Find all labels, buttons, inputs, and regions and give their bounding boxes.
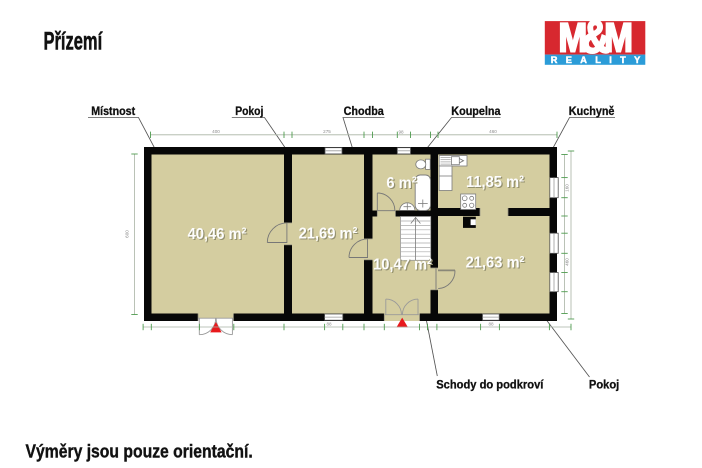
svg-text:REALITY: REALITY [551,55,649,65]
svg-text:600: 600 [125,230,130,238]
svg-text:Schody do podkroví: Schody do podkroví [436,379,544,391]
svg-text:Pokoj: Pokoj [589,379,619,391]
svg-text:10,47 m²: 10,47 m² [373,256,432,274]
svg-text:21,63 m²: 21,63 m² [466,254,525,272]
svg-text:Kuchyně: Kuchyně [569,106,615,118]
svg-text:275: 275 [323,129,331,134]
svg-text:21,69 m²: 21,69 m² [299,225,358,243]
svg-text:Pokoj: Pokoj [235,106,263,119]
svg-text:6 m²: 6 m² [386,174,416,192]
svg-text:11,85 m²: 11,85 m² [466,173,524,191]
svg-text:88: 88 [326,322,332,327]
svg-text:400: 400 [212,129,220,134]
svg-text:460: 460 [489,129,497,134]
svg-text:460: 460 [565,258,570,266]
svg-text:Výměry jsou pouze orientační.: Výměry jsou pouze orientační. [26,441,253,461]
svg-text:40,46 m²: 40,46 m² [188,225,247,243]
svg-text:Chodba: Chodba [344,106,385,118]
svg-text:Přízemí: Přízemí [44,28,104,55]
svg-text:98: 98 [398,130,404,135]
svg-text:Koupelna: Koupelna [451,106,501,118]
svg-text:160: 160 [565,184,570,192]
svg-text:Místnost: Místnost [91,106,135,118]
svg-text:88: 88 [488,322,494,327]
